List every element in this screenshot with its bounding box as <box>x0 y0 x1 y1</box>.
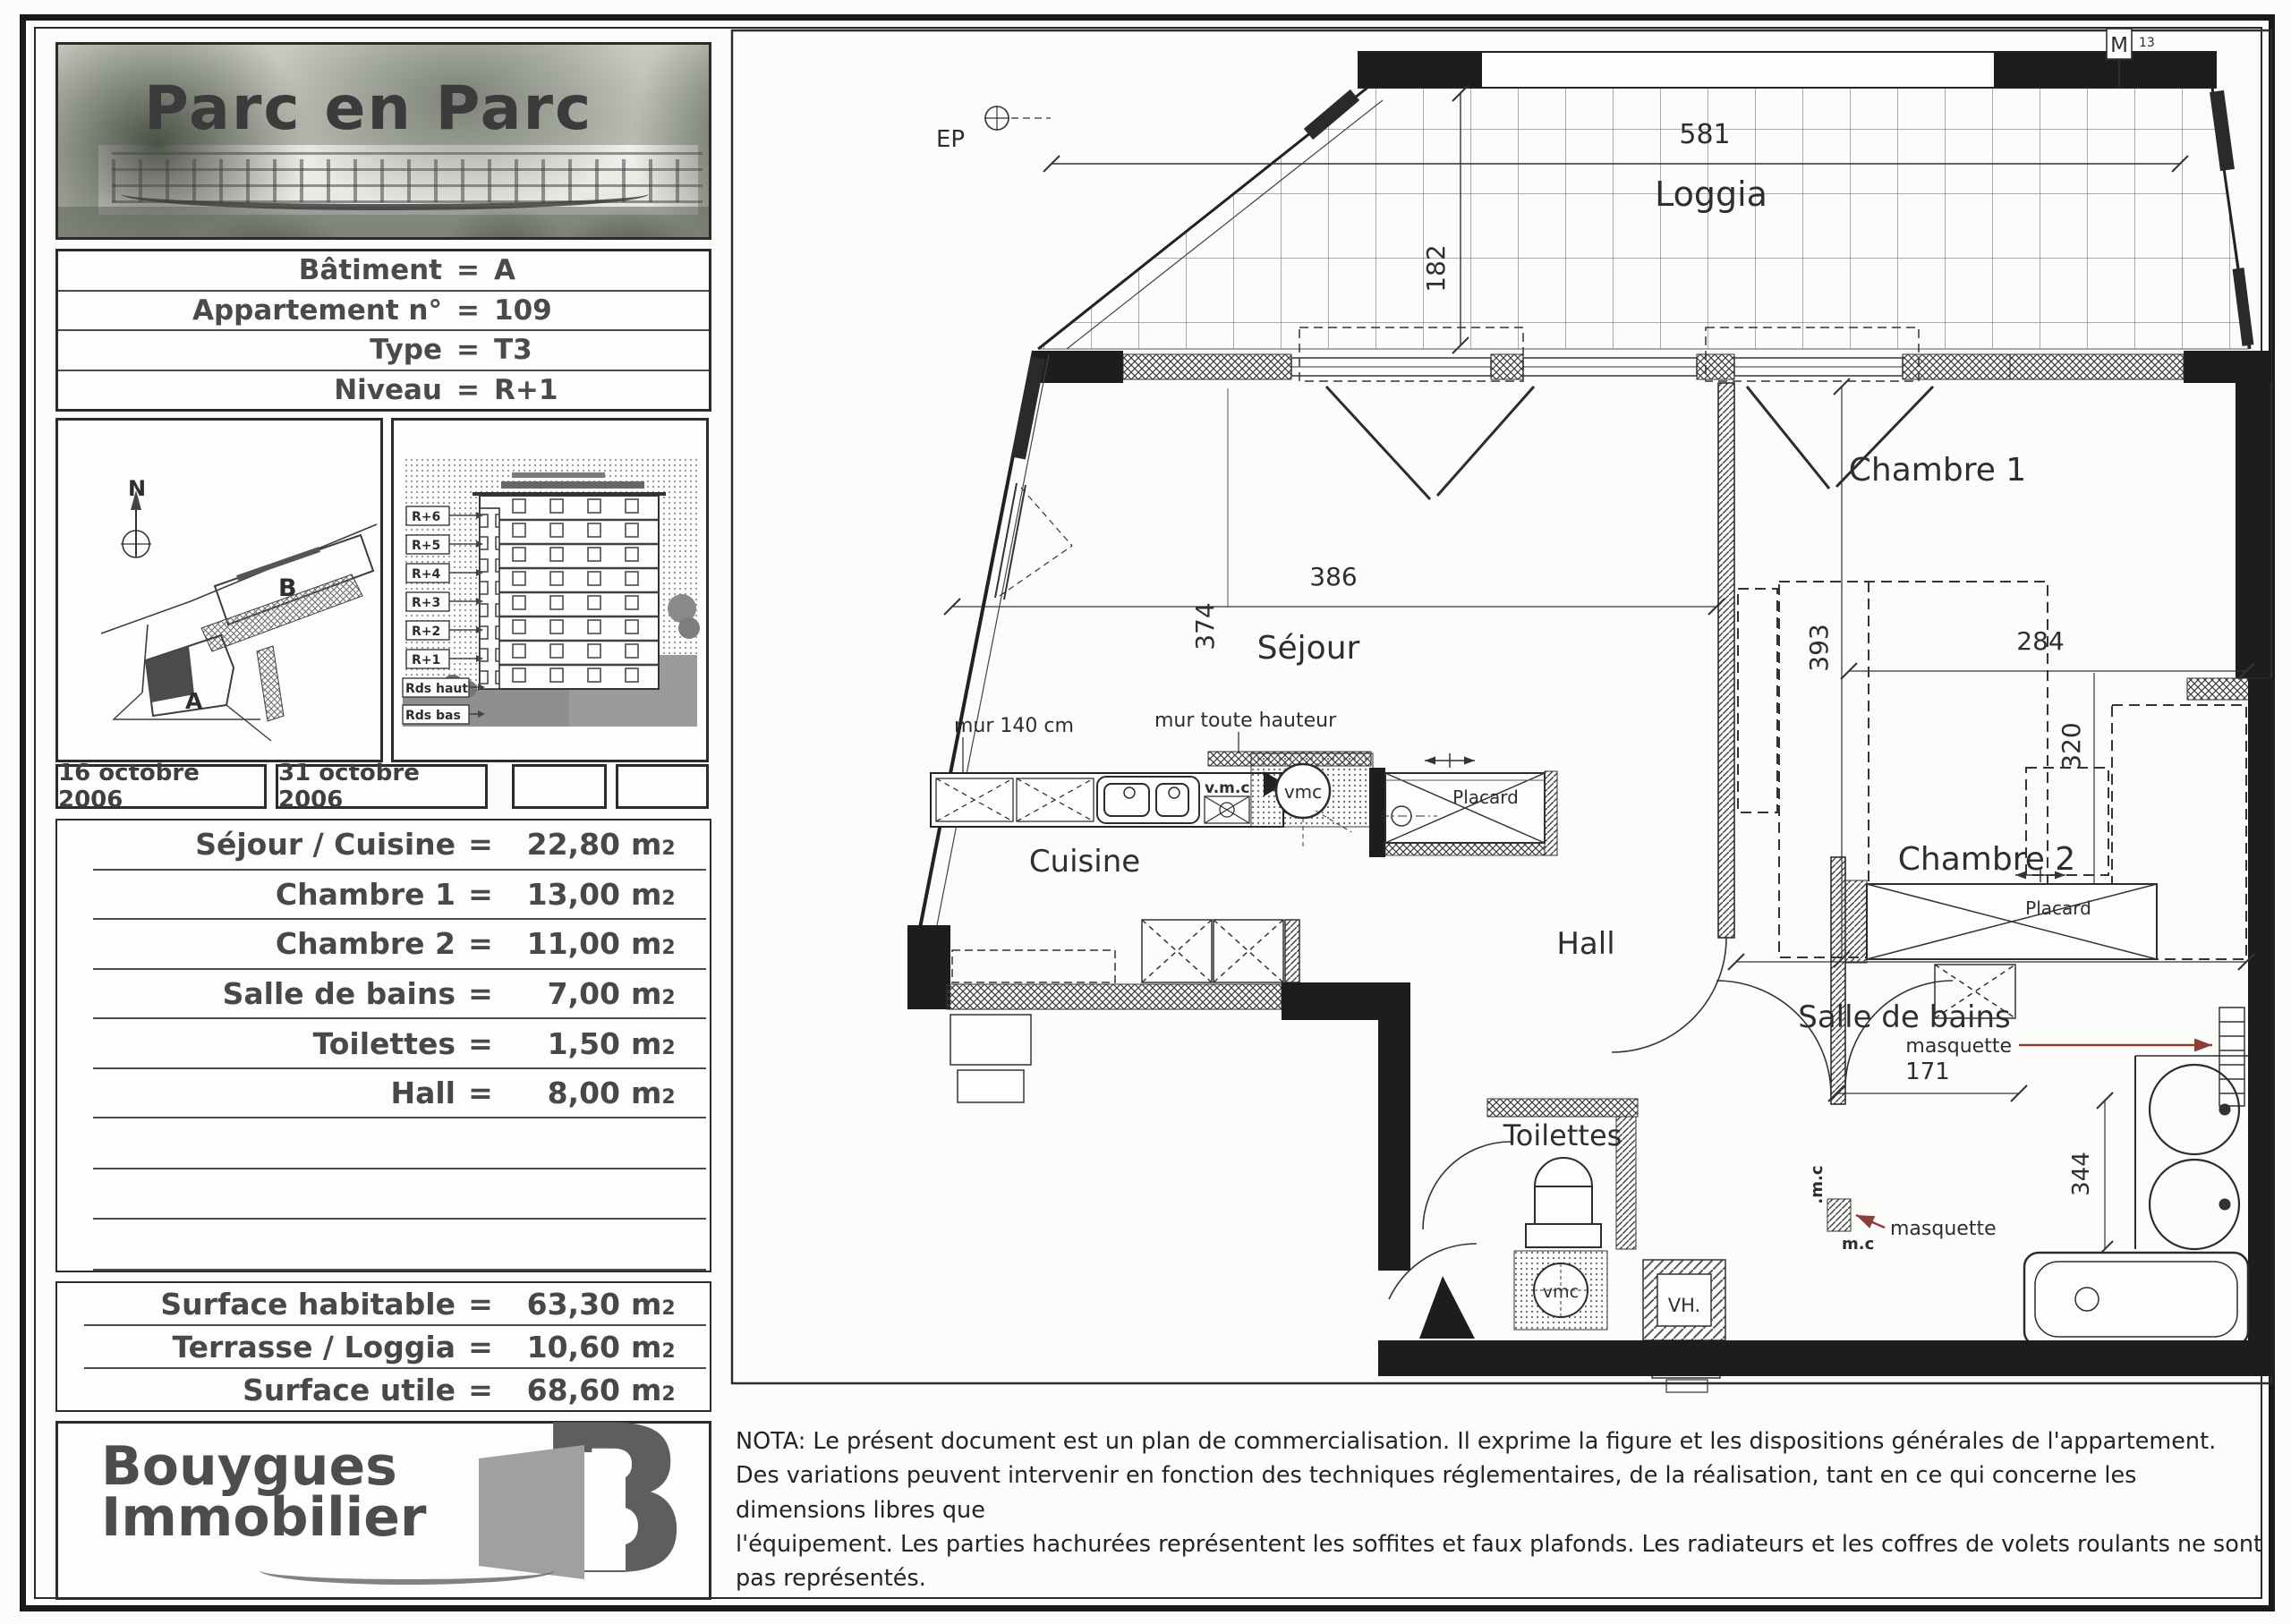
dim-ch2-width: 284 <box>2016 626 2064 656</box>
facade-wall <box>1034 327 2271 499</box>
vmc-label: vmc <box>1284 781 1322 803</box>
room-label-cuisine: Cuisine <box>1029 844 1140 880</box>
salle-de-bains-area: Salle de bains masquette 171 344 <box>1798 965 2248 1346</box>
door-arc <box>1423 1142 1511 1229</box>
bathtub <box>2024 1253 2248 1346</box>
room-label-sejour: Séjour <box>1257 630 1360 667</box>
kitchen-sink <box>1097 777 1199 823</box>
dim-loggia-width: 581 <box>1679 119 1730 150</box>
room-label-hall: Hall <box>1556 926 1614 962</box>
svg-text:M: M <box>2110 34 2128 57</box>
hall-area: Placard Hall <box>1369 753 1831 1095</box>
nota-line: l'équipement. Les parties hachurées repr… <box>736 1527 2262 1596</box>
entrance-door-leaf <box>1419 1276 1475 1339</box>
dim-ch1-depth: 393 <box>1804 624 1834 671</box>
masquette-label: masquette <box>1905 1035 2012 1058</box>
toilettes-area: Toilettes vmc <box>1423 1099 1638 1330</box>
placard-label: Placard <box>1452 786 1519 808</box>
dim-sdb-width: 171 <box>1905 1059 1950 1085</box>
ep-label: EP <box>936 126 965 153</box>
room-label-loggia: Loggia <box>1655 174 1767 214</box>
vmc-text-label: v.m.c <box>1205 779 1249 797</box>
room-label-chambre2: Chambre 2 <box>1898 841 2075 878</box>
left-exterior-wall <box>907 351 1072 1009</box>
mc-label: .m.c <box>1808 1165 1827 1203</box>
nota-line: NOTA: Le présent document est un plan de… <box>736 1424 2262 1458</box>
dim-sejour-depth: 374 <box>1190 602 1220 650</box>
bottom-wall-hatch <box>947 984 1282 1009</box>
masquette-label: masquette <box>1890 1218 1997 1240</box>
sejour-area: 386 374 Séjour <box>944 388 1725 667</box>
room-label-toilettes: Toilettes <box>1503 1118 1622 1152</box>
nota-text: NOTA: Le présent document est un plan de… <box>736 1424 2262 1595</box>
mur140-label: mur 140 cm <box>954 715 1074 737</box>
dim-sejour-width: 386 <box>1309 562 1357 591</box>
room-label-sdb: Salle de bains <box>1798 999 2010 1035</box>
kitchen-lower-cabinets <box>1142 920 1299 982</box>
masquette-radiator <box>2219 1008 2244 1106</box>
mc-label: m.c <box>1842 1235 1874 1254</box>
nota-line: Des variations peuvent intervenir en fon… <box>736 1458 2262 1527</box>
dim-ch2-depth: 320 <box>2057 722 2086 769</box>
door-arc <box>1716 981 1831 1095</box>
scanned-floor-plan-document: Parc en Parc Bâtiment = A Appartement n°… <box>0 0 2291 1624</box>
svg-text:13: 13 <box>2139 36 2155 50</box>
survey-target-icon <box>984 106 1051 131</box>
door-arc <box>1612 938 1726 1052</box>
room-label-chambre1: Chambre 1 <box>1849 452 2026 489</box>
loggia-area: 581 182 Loggia EP M 13 <box>936 29 2250 353</box>
dim-sdb-depth: 344 <box>2068 1152 2095 1196</box>
ch2-partition <box>1831 857 1845 1104</box>
toilet <box>1526 1158 1601 1247</box>
placard-label: Placard <box>2025 897 2091 919</box>
vh-label: VH. <box>1668 1295 1700 1316</box>
sejour-ch1-partition <box>1718 383 1734 938</box>
mur-toute-hauteur-label: mur toute hauteur <box>1154 710 1337 732</box>
double-washbasin <box>2135 1056 2248 1249</box>
cuisine-area: mur 140 cm mur toute hauteur v.m.c <box>931 710 1373 1102</box>
floor-plan: 581 182 Loggia EP M 13 <box>0 0 2291 1624</box>
dim-loggia-depth: 182 <box>1421 244 1451 292</box>
ch2-placard: Placard <box>1845 868 2157 963</box>
